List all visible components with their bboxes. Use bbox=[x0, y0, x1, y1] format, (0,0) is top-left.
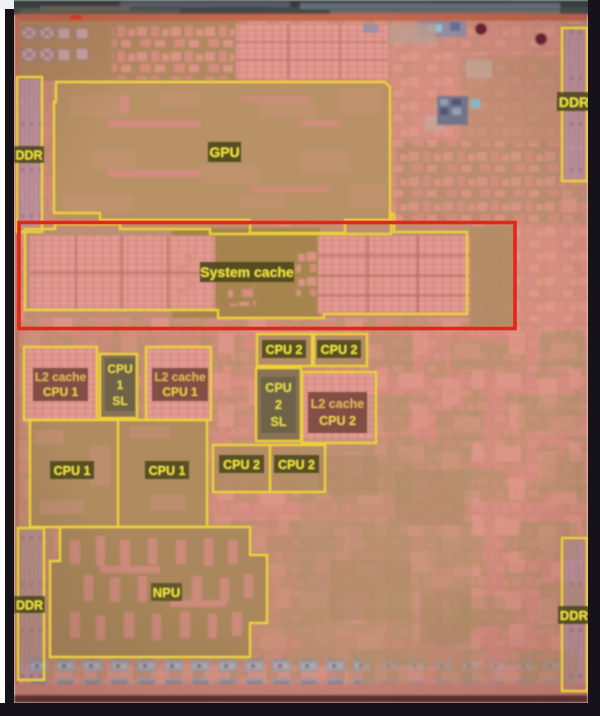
svg-text:L2 cache: L2 cache bbox=[311, 397, 365, 411]
svg-text:CPU 1: CPU 1 bbox=[43, 385, 79, 399]
svg-text:DDR: DDR bbox=[559, 94, 589, 110]
svg-text:NPU: NPU bbox=[153, 585, 180, 600]
svg-text:SL: SL bbox=[271, 415, 287, 429]
svg-text:CPU 1: CPU 1 bbox=[54, 464, 91, 478]
svg-text:DDR: DDR bbox=[560, 608, 589, 623]
svg-text:CPU 2: CPU 2 bbox=[278, 458, 315, 472]
svg-text:L2 cache: L2 cache bbox=[35, 370, 87, 384]
svg-text:CPU 2: CPU 2 bbox=[321, 343, 358, 357]
svg-text:CPU 2: CPU 2 bbox=[319, 414, 356, 428]
svg-text:GPU: GPU bbox=[209, 144, 239, 160]
svg-text:CPU: CPU bbox=[107, 362, 132, 376]
svg-text:CPU 2: CPU 2 bbox=[266, 343, 303, 357]
svg-text:SL: SL bbox=[112, 394, 127, 408]
svg-text:L2 cache: L2 cache bbox=[154, 370, 206, 384]
svg-text:CPU: CPU bbox=[265, 381, 291, 395]
svg-text:DDR: DDR bbox=[16, 599, 43, 613]
svg-text:CPU 2: CPU 2 bbox=[223, 458, 260, 472]
svg-text:CPU 1: CPU 1 bbox=[149, 464, 186, 478]
svg-text:1: 1 bbox=[117, 378, 124, 392]
svg-text:2: 2 bbox=[275, 398, 282, 412]
svg-text:DDR: DDR bbox=[15, 149, 42, 163]
svg-text:System cache: System cache bbox=[200, 264, 294, 280]
svg-text:CPU 1: CPU 1 bbox=[162, 385, 198, 399]
